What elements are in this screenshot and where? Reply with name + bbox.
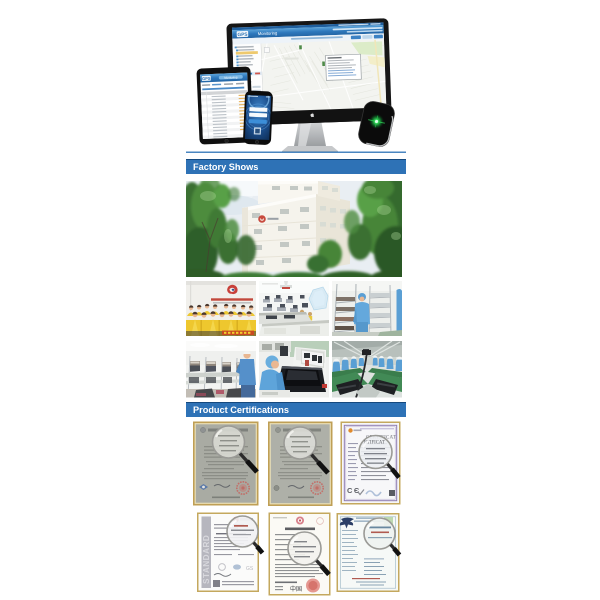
svg-text:GPS: GPS [202,76,211,81]
svg-text:STANDARD: STANDARD [202,535,211,584]
svg-text:Monitoring: Monitoring [258,30,278,36]
svg-text:GS: GS [246,566,254,572]
svg-text:C Є: C Є [347,486,360,495]
svg-text:中国: 中国 [290,585,302,593]
svg-text:Monitoring: Monitoring [224,75,238,80]
svg-text:GPS: GPS [237,32,248,38]
